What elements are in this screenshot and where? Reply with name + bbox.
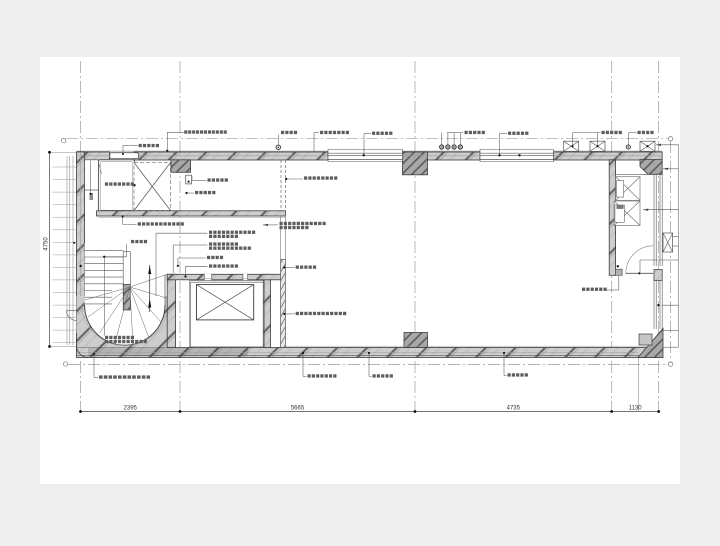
svg-text:5665: 5665 <box>291 406 305 412</box>
svg-text:1130: 1130 <box>629 406 643 412</box>
svg-text:2395: 2395 <box>124 406 138 412</box>
svg-text:4735: 4735 <box>507 406 521 412</box>
svg-text:4750: 4750 <box>44 237 50 251</box>
